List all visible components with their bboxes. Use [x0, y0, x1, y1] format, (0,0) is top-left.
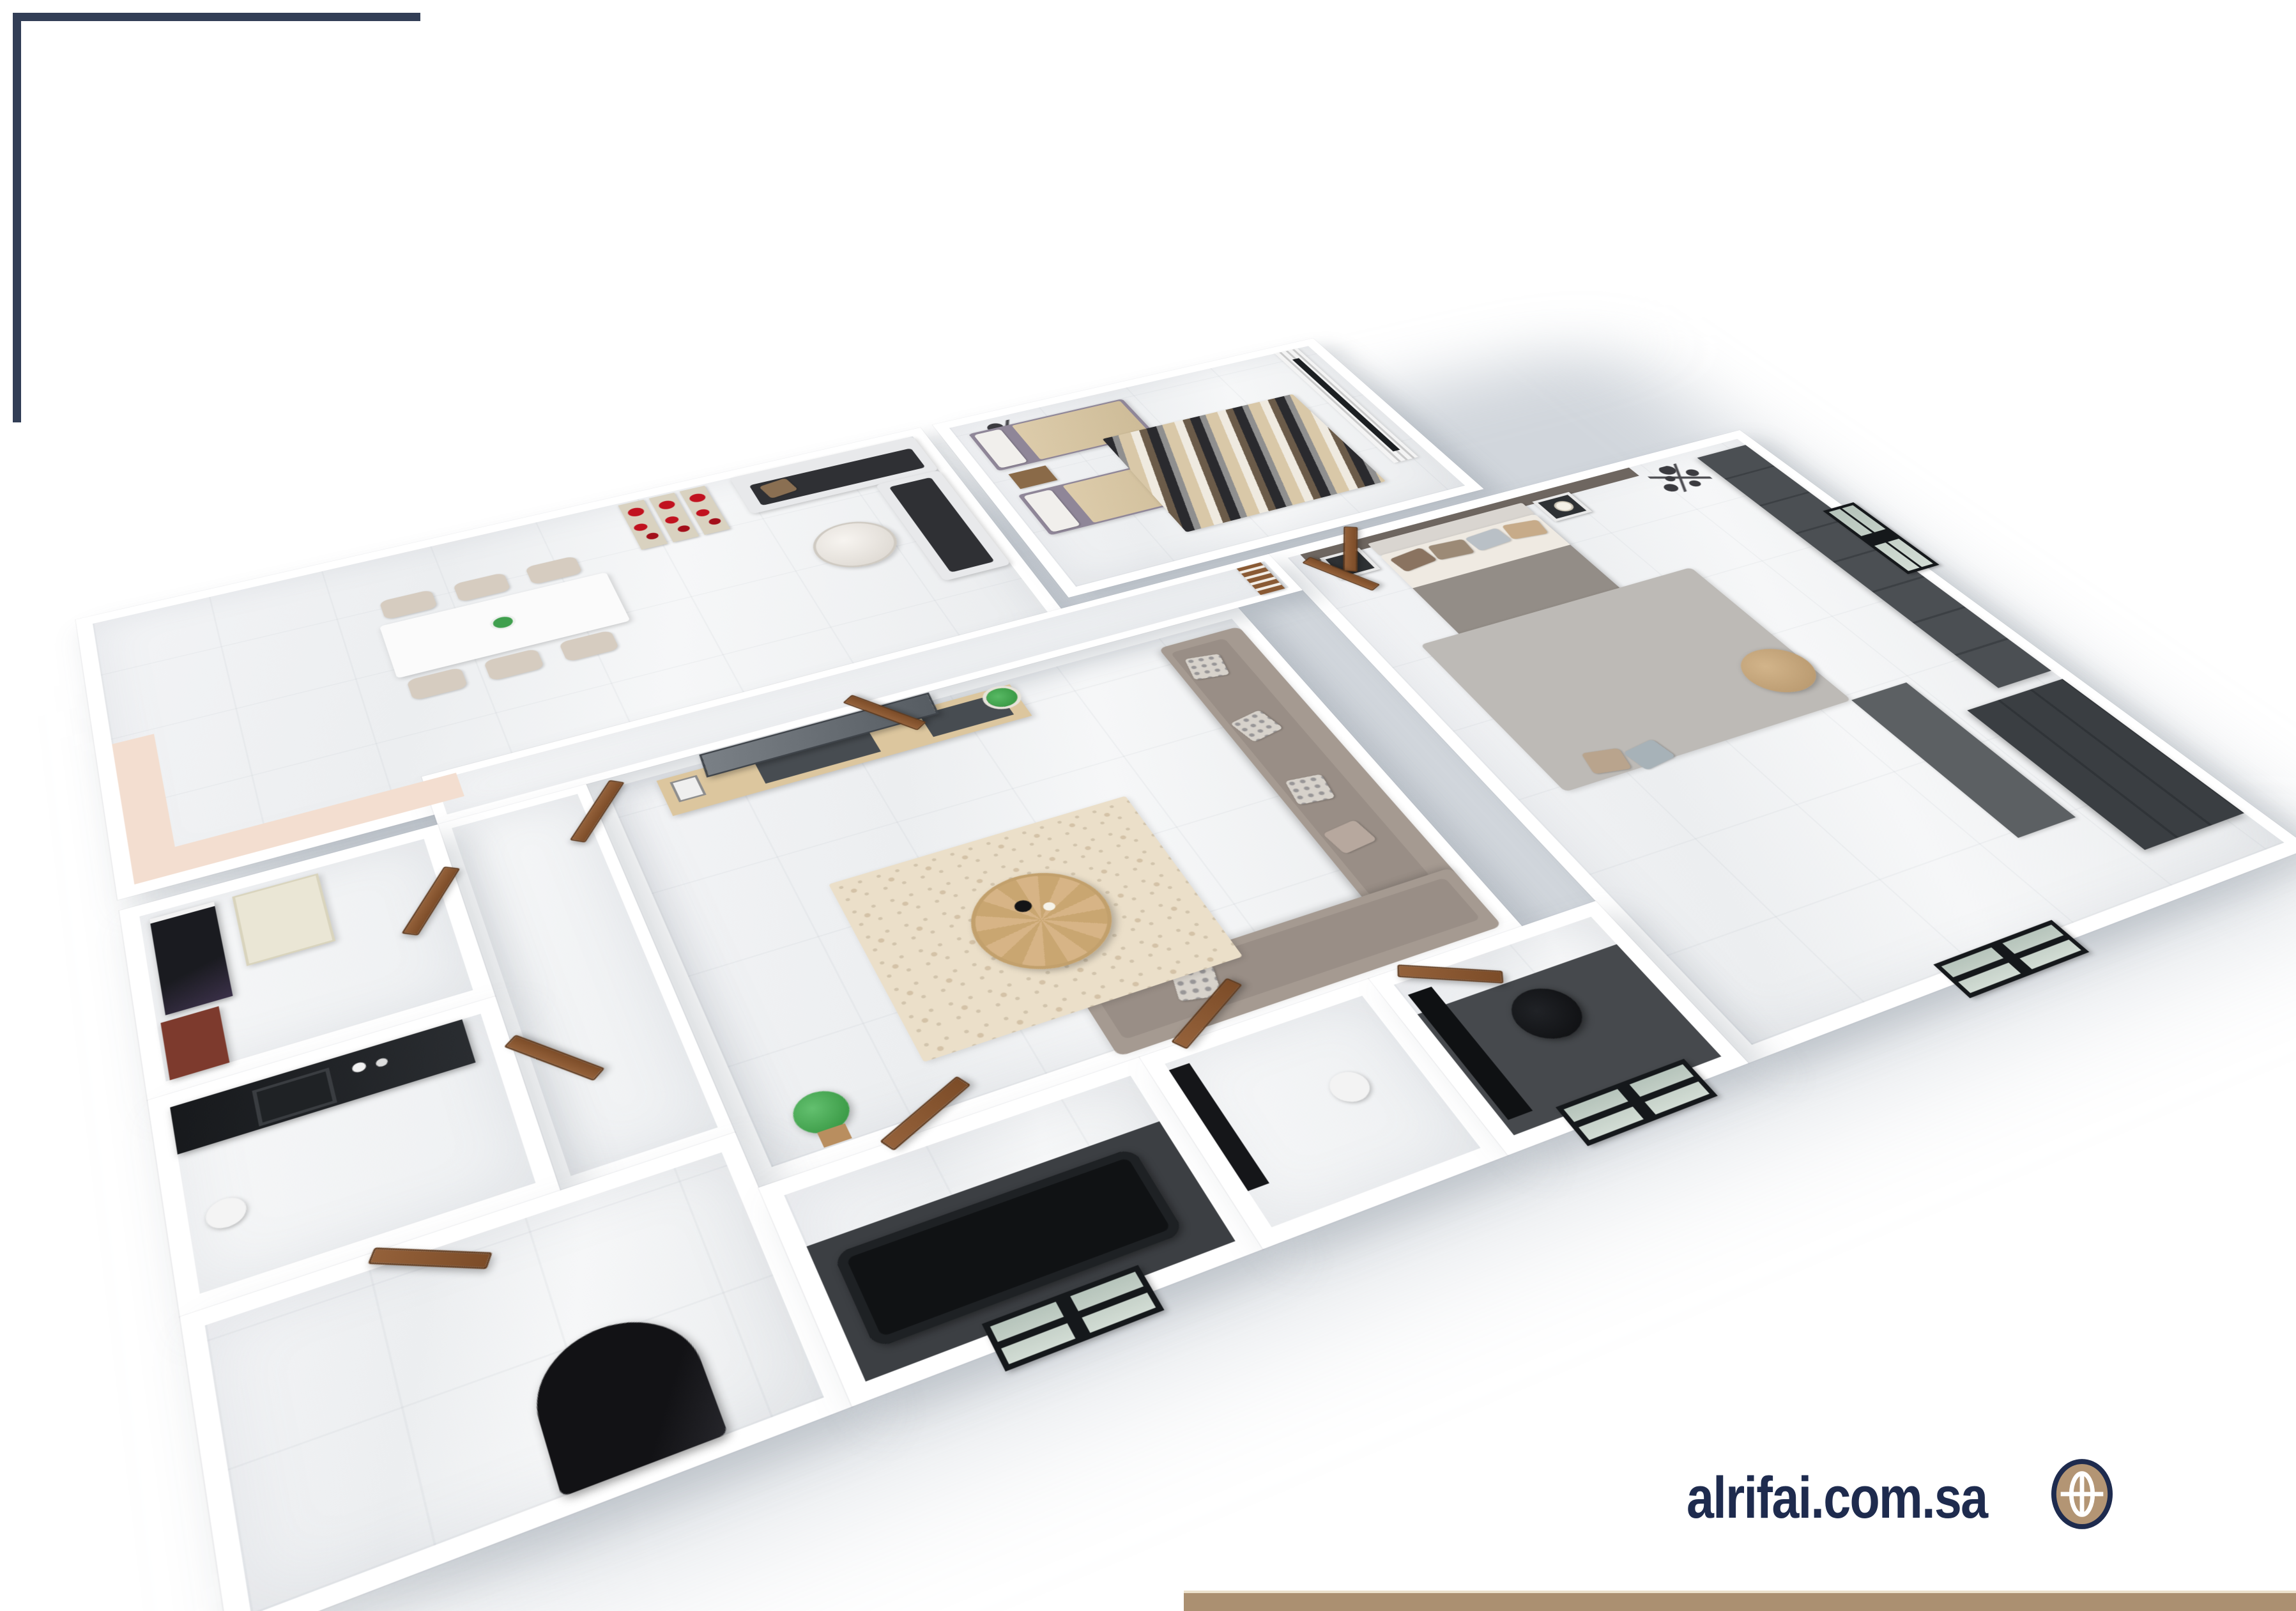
website-url: alrifai.com.sa — [1687, 1468, 1987, 1527]
bottom-accent-bar — [1184, 1591, 2296, 1611]
page: alrifai.com.sa — [0, 0, 2296, 1611]
door-leaf-kids-bedroom — [1343, 527, 1358, 572]
website-brand: alrifai.com.sa — [1687, 1466, 2044, 1530]
floor-plan-render — [59, 279, 2296, 1611]
corner-bracket-decor — [13, 13, 420, 422]
globe-icon — [2051, 1458, 2113, 1530]
